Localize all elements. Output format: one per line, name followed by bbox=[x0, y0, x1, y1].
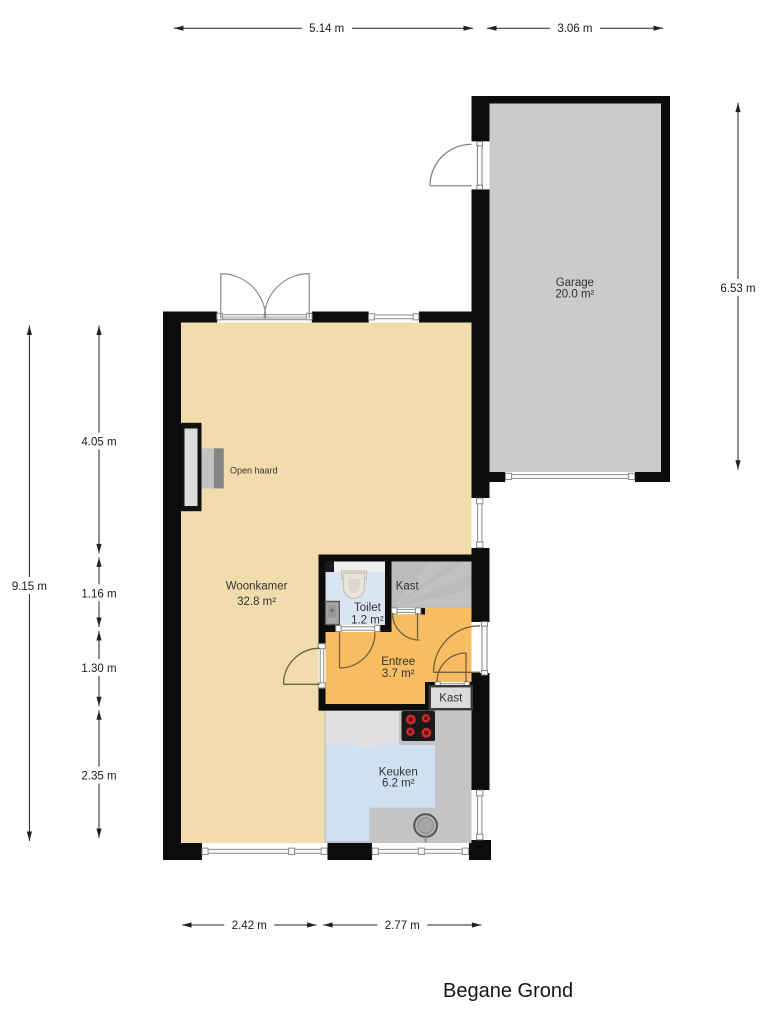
svg-text:Garage: Garage bbox=[556, 277, 594, 289]
svg-text:6.2 m²: 6.2 m² bbox=[382, 777, 415, 789]
svg-text:Kast: Kast bbox=[439, 693, 463, 705]
svg-text:Toilet: Toilet bbox=[354, 602, 382, 614]
svg-text:4.05 m: 4.05 m bbox=[81, 437, 116, 449]
svg-text:32.8 m²: 32.8 m² bbox=[237, 596, 276, 608]
svg-text:1.2 m²: 1.2 m² bbox=[351, 615, 384, 627]
svg-text:3.06 m: 3.06 m bbox=[557, 23, 592, 35]
svg-text:Woonkamer: Woonkamer bbox=[226, 580, 288, 592]
svg-text:Open haard: Open haard bbox=[230, 466, 278, 476]
svg-text:2.35 m: 2.35 m bbox=[81, 771, 116, 783]
svg-text:5.14 m: 5.14 m bbox=[309, 23, 344, 35]
svg-text:20.0 m²: 20.0 m² bbox=[555, 289, 594, 301]
svg-text:9.15 m: 9.15 m bbox=[12, 581, 47, 593]
svg-text:Entree: Entree bbox=[381, 656, 415, 668]
svg-text:2.42 m: 2.42 m bbox=[232, 920, 267, 932]
svg-text:6.53 m: 6.53 m bbox=[720, 283, 755, 295]
svg-text:1.30 m: 1.30 m bbox=[81, 663, 116, 675]
svg-text:1.16 m: 1.16 m bbox=[81, 588, 116, 600]
svg-text:3.7 m²: 3.7 m² bbox=[382, 668, 415, 680]
svg-text:Begane Grond: Begane Grond bbox=[443, 980, 573, 1002]
svg-text:Kast: Kast bbox=[396, 581, 420, 593]
svg-text:2.77 m: 2.77 m bbox=[385, 920, 420, 932]
